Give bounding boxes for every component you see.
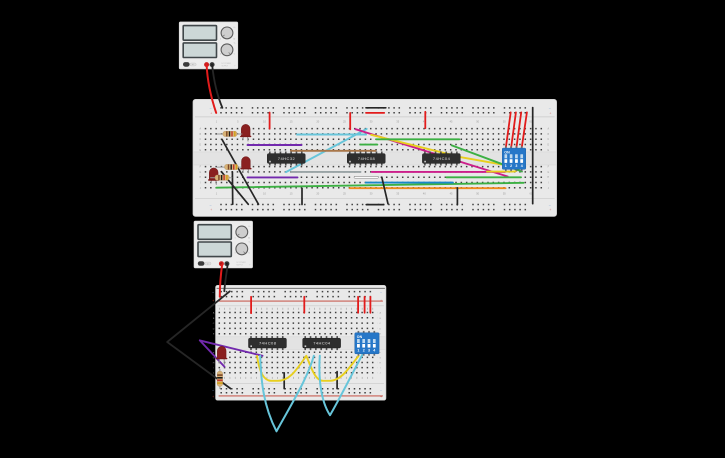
svg-text:0: 0	[235, 253, 236, 255]
svg-text:1: 1	[505, 164, 507, 168]
svg-text:–: –	[380, 388, 382, 392]
svg-text:74HC04: 74HC04	[433, 156, 451, 161]
svg-text:H: H	[199, 176, 201, 179]
svg-text:ON: ON	[357, 335, 363, 339]
svg-text:–: –	[212, 290, 214, 294]
svg-text:C: C	[547, 138, 549, 141]
svg-text:O–: O–	[234, 42, 236, 44]
svg-text:D: D	[199, 144, 201, 147]
svg-text:G: G	[547, 171, 549, 174]
svg-text:O–: O–	[249, 241, 251, 243]
svg-text:SUPPLY: SUPPLY	[236, 264, 243, 266]
svg-text:+: +	[212, 395, 214, 399]
svg-text:ON: ON	[504, 150, 510, 154]
svg-text:5: 5	[234, 54, 235, 56]
svg-text:–: –	[380, 290, 382, 294]
svg-text:3: 3	[515, 164, 517, 168]
svg-text:J: J	[213, 373, 214, 375]
svg-text:J: J	[380, 373, 381, 375]
svg-text:+: +	[380, 395, 382, 399]
svg-text:0: 0	[220, 54, 221, 56]
svg-text:+: +	[212, 299, 214, 303]
svg-text:+: +	[549, 208, 551, 212]
svg-text:74HC08: 74HC08	[259, 340, 277, 345]
svg-text:2: 2	[510, 164, 512, 168]
svg-text:0: 0	[220, 38, 221, 40]
svg-text:G: G	[379, 357, 381, 359]
svg-text:+: +	[210, 208, 212, 212]
svg-text:–: –	[210, 106, 212, 110]
svg-text:3: 3	[368, 349, 370, 353]
svg-text:G: G	[213, 357, 215, 359]
svg-text:–: –	[549, 106, 551, 110]
svg-text:30: 30	[248, 238, 250, 240]
svg-text:C: C	[199, 138, 201, 141]
svg-text:74HC32: 74HC32	[278, 156, 296, 161]
svg-text:H: H	[547, 176, 549, 179]
svg-text:D: D	[547, 144, 549, 147]
svg-text:30: 30	[233, 38, 235, 40]
svg-text:74HC04: 74HC04	[313, 340, 331, 345]
svg-text:O–: O–	[248, 226, 250, 228]
svg-text:–: –	[210, 203, 212, 207]
svg-text:–: –	[212, 388, 214, 392]
svg-text:O–: O–	[233, 27, 235, 29]
svg-text:G: G	[199, 171, 201, 174]
svg-text:+: +	[380, 299, 382, 303]
svg-text:4: 4	[373, 349, 375, 353]
svg-text:SUPPLY: SUPPLY	[222, 65, 229, 67]
svg-text:5: 5	[249, 253, 250, 255]
svg-text:–: –	[549, 203, 551, 207]
svg-text:74HC08: 74HC08	[358, 156, 376, 161]
svg-text:4: 4	[521, 164, 523, 168]
svg-text:+: +	[210, 111, 212, 115]
svg-text:0: 0	[235, 238, 236, 240]
svg-text:1: 1	[357, 349, 359, 353]
svg-text:2: 2	[363, 349, 365, 353]
svg-text:+: +	[549, 111, 551, 115]
